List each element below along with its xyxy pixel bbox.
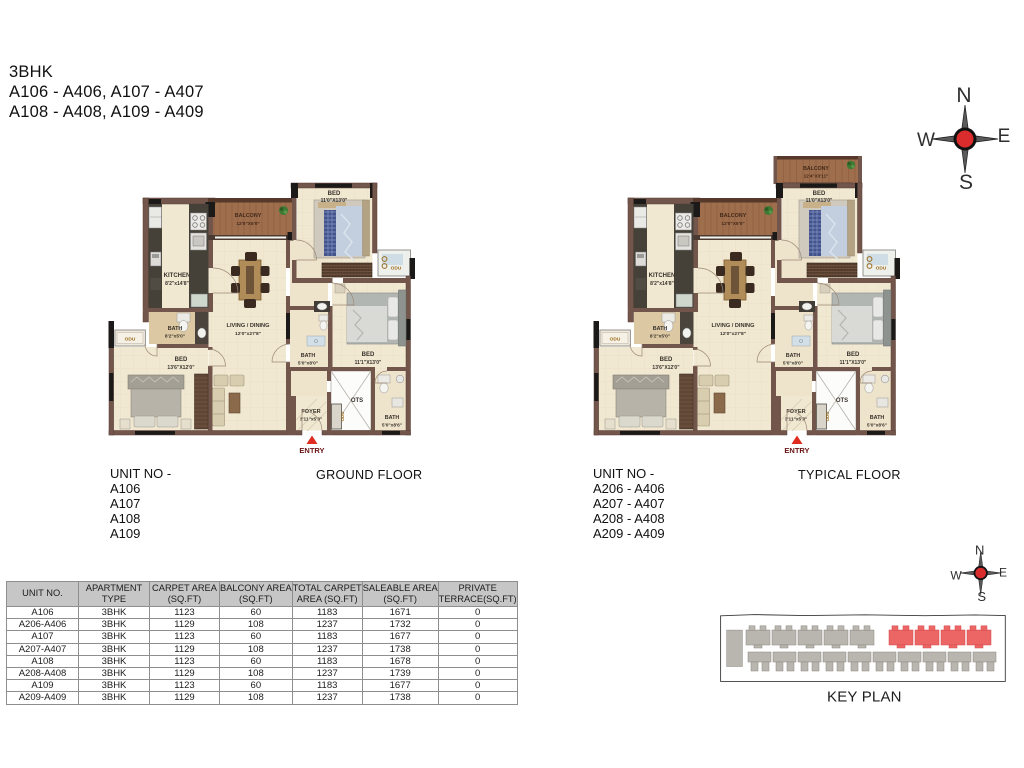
svg-text:KEY PLAN: KEY PLAN	[827, 689, 902, 706]
svg-text:BED: BED	[175, 357, 188, 363]
svg-text:ODU: ODU	[825, 412, 830, 422]
svg-text:8'2"x14'8": 8'2"x14'8"	[165, 281, 189, 287]
svg-text:BATH: BATH	[870, 415, 885, 421]
svg-text:BATH: BATH	[786, 353, 801, 359]
svg-text:KITCHEN: KITCHEN	[649, 273, 676, 279]
svg-text:W: W	[950, 569, 962, 583]
svg-text:ODU: ODU	[391, 266, 402, 272]
svg-text:11'1"X13'0": 11'1"X13'0"	[355, 360, 382, 366]
svg-text:N: N	[956, 84, 971, 107]
svg-text:5'0"x8'0": 5'0"x8'0"	[298, 361, 318, 367]
svg-text:5'0"x8'6": 5'0"x8'6"	[867, 423, 887, 429]
svg-text:8'2"x14'8": 8'2"x14'8"	[650, 281, 674, 287]
svg-text:12'0"x27'8": 12'0"x27'8"	[720, 331, 746, 337]
svg-text:ENTRY: ENTRY	[784, 446, 809, 455]
svg-text:BED: BED	[847, 352, 860, 358]
svg-text:13'6"X12'0": 13'6"X12'0"	[652, 365, 680, 371]
svg-text:S: S	[959, 171, 973, 194]
svg-text:FOYER: FOYER	[786, 409, 805, 415]
svg-text:ENTRY: ENTRY	[299, 446, 324, 455]
svg-text:12'0"x27'8": 12'0"x27'8"	[235, 331, 261, 337]
svg-text:BATH: BATH	[385, 415, 400, 421]
svg-text:BATH: BATH	[653, 326, 668, 332]
svg-text:ODU: ODU	[610, 337, 621, 343]
svg-text:FOYER: FOYER	[301, 409, 320, 415]
svg-text:ODU: ODU	[125, 337, 136, 343]
svg-text:N: N	[975, 543, 984, 558]
svg-text:13'6"X12'0": 13'6"X12'0"	[167, 365, 195, 371]
svg-text:E: E	[999, 566, 1007, 580]
svg-text:BED: BED	[328, 191, 341, 197]
svg-text:LIVING / DINING: LIVING / DINING	[227, 323, 270, 329]
svg-text:BALCONY: BALCONY	[803, 166, 829, 172]
svg-text:12'0"X5'0": 12'0"X5'0"	[236, 221, 259, 227]
svg-text:12'0"X5'0": 12'0"X5'0"	[721, 221, 744, 227]
svg-text:11'1"X13'0": 11'1"X13'0"	[840, 360, 867, 366]
svg-text:11'0"X13'0": 11'0"X13'0"	[806, 198, 833, 204]
svg-text:E: E	[998, 126, 1011, 147]
svg-text:BALCONY: BALCONY	[720, 213, 747, 219]
svg-text:12'4"X3'11": 12'4"X3'11"	[804, 174, 829, 179]
svg-text:BALCONY: BALCONY	[235, 213, 262, 219]
svg-text:LIVING / DINING: LIVING / DINING	[712, 323, 755, 329]
svg-text:BATH: BATH	[301, 353, 316, 359]
svg-text:5'0"x8'6": 5'0"x8'6"	[382, 423, 402, 429]
svg-text:BATH: BATH	[168, 326, 183, 332]
svg-text:ODU: ODU	[876, 266, 887, 272]
svg-text:8'2"x5'0": 8'2"x5'0"	[650, 334, 670, 340]
svg-text:W: W	[917, 130, 935, 151]
svg-text:11'0"X13'0": 11'0"X13'0"	[321, 198, 348, 204]
svg-text:OTS: OTS	[351, 398, 363, 404]
svg-text:KITCHEN: KITCHEN	[164, 273, 191, 279]
svg-text:OTS: OTS	[836, 398, 848, 404]
svg-text:8'2"x5'0": 8'2"x5'0"	[165, 334, 185, 340]
svg-text:S: S	[977, 589, 986, 604]
svg-text:BED: BED	[362, 352, 375, 358]
svg-text:BED: BED	[660, 357, 673, 363]
svg-text:BED: BED	[813, 191, 826, 197]
svg-text:5'0"x8'0": 5'0"x8'0"	[783, 361, 803, 367]
svg-text:ODU: ODU	[340, 412, 345, 422]
